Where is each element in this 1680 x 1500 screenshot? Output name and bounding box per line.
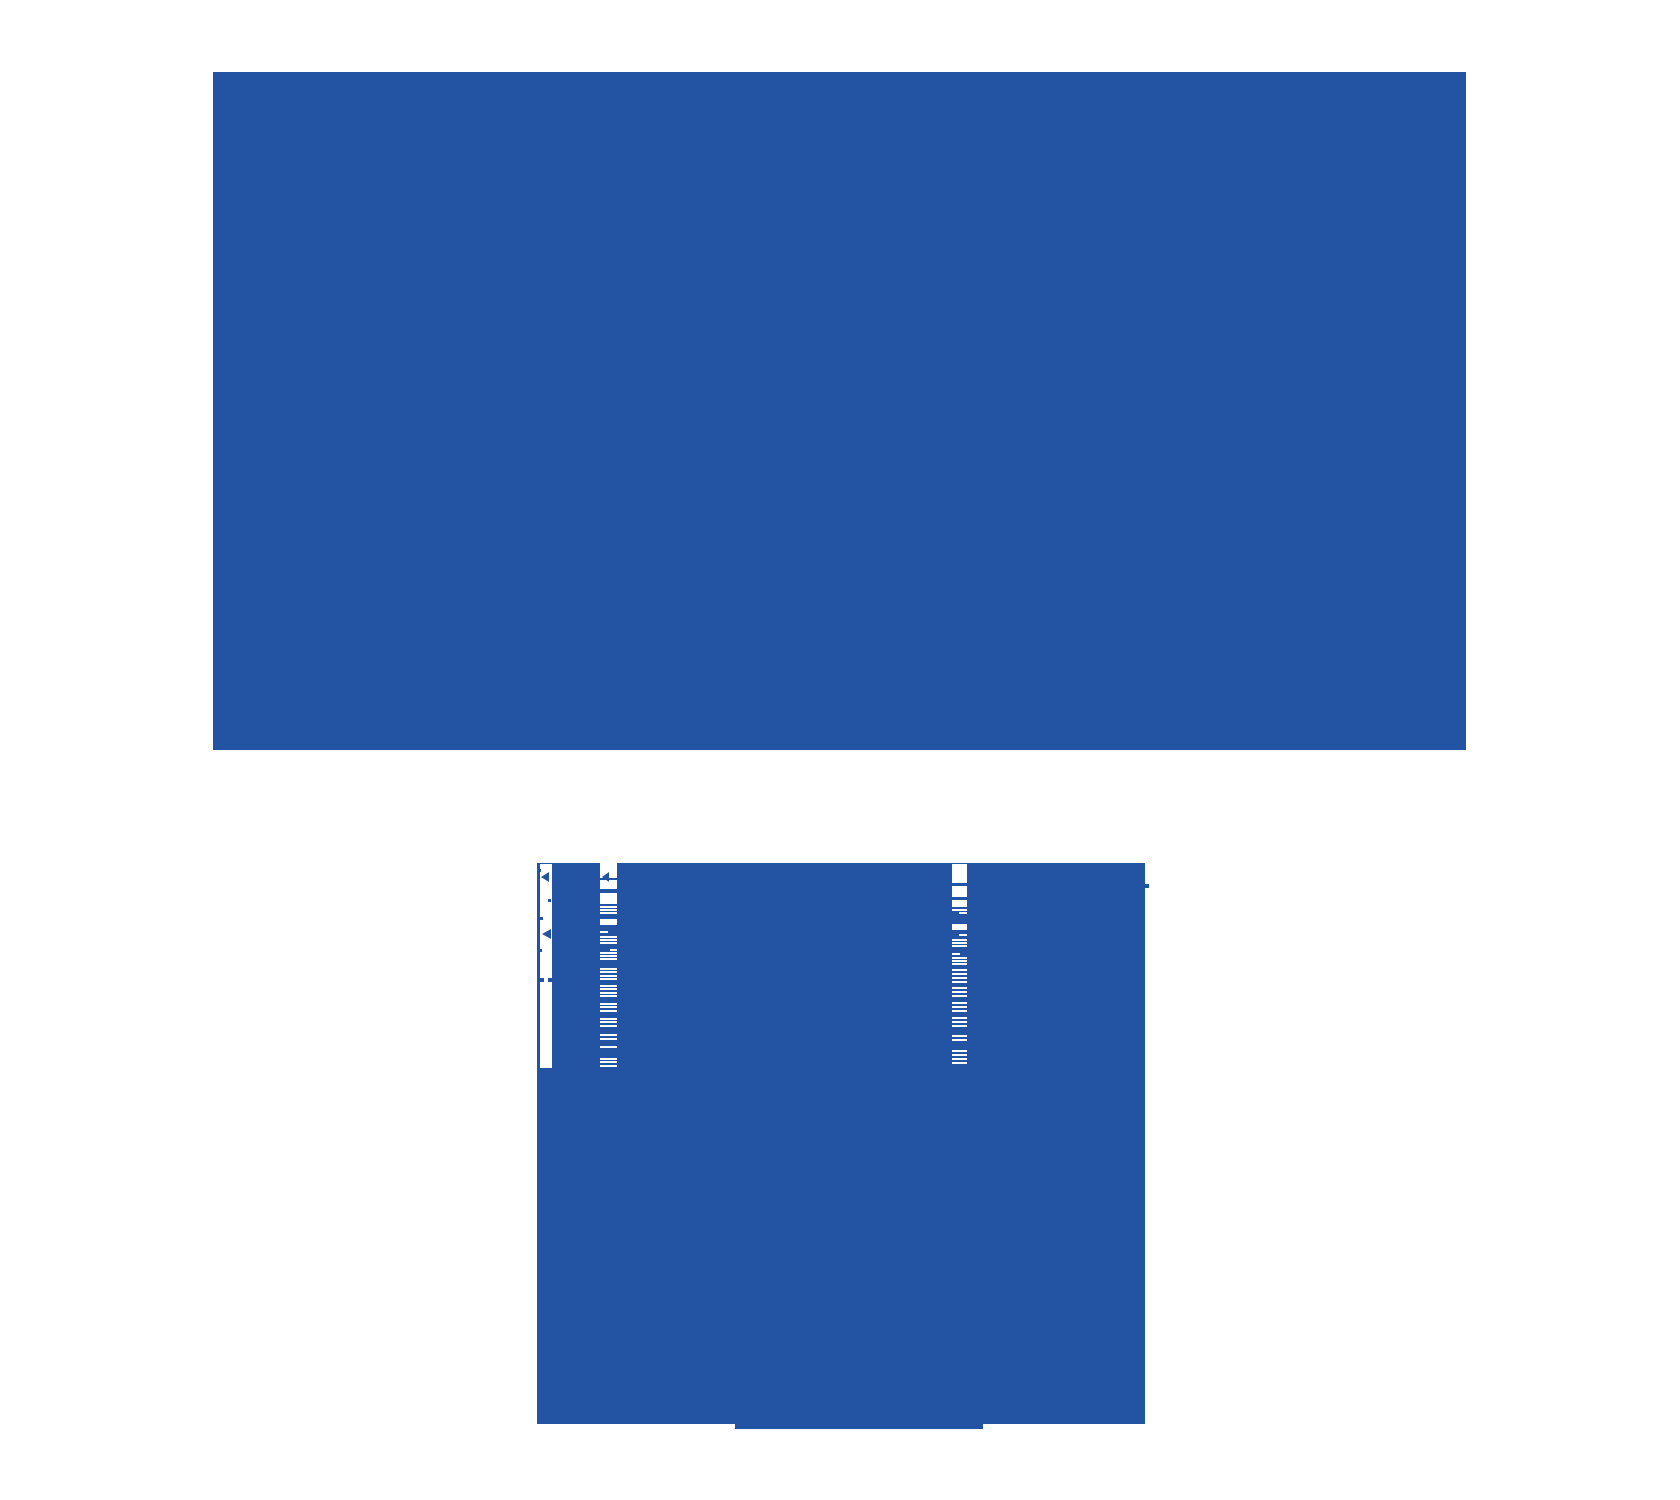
scroll-dot <box>548 899 551 902</box>
thumbnail-text-line <box>610 949 617 951</box>
scrollbar-gutter[interactable] <box>540 864 552 1068</box>
thumbnail-text-line <box>952 1010 967 1012</box>
scroll-dot <box>539 949 542 952</box>
thumbnail-text-line <box>952 1021 967 1023</box>
thumbnail-text-line <box>600 1021 617 1023</box>
scroll-dot <box>548 978 552 982</box>
thumbnail-text-line <box>959 934 967 936</box>
thumbnail-text-line <box>600 936 617 938</box>
thumbnail-text-line <box>600 992 617 994</box>
thumbnail-text-line <box>952 960 967 962</box>
thumbnail-text-line <box>600 975 617 977</box>
thumbnail-text-line <box>600 1018 617 1020</box>
top-window[interactable] <box>213 72 1466 750</box>
thumbnail-text-line <box>952 995 967 997</box>
thumbnail-text-block <box>952 886 967 897</box>
thumbnail-text-line <box>952 1002 967 1004</box>
thumbnail-text-line <box>952 909 967 911</box>
thumbnail-text-line <box>600 1006 617 1008</box>
thumbnail-text-line <box>600 995 617 997</box>
thumbnail-text-line <box>952 939 967 941</box>
thumbnail-text-line <box>600 1010 617 1012</box>
thumbnail-text-line <box>600 1025 617 1027</box>
thumbnail-text-line <box>959 912 967 914</box>
scroll-dot <box>540 978 544 982</box>
thumbnail-text-line <box>952 973 967 975</box>
thumbnail-text-line <box>952 942 967 944</box>
thumbnail-text-line <box>952 1058 967 1060</box>
thumbnail-text-line <box>952 953 960 955</box>
thumbnail-text-line <box>600 988 617 990</box>
thumbnail-text-line <box>600 952 617 954</box>
thumbnail-text-line <box>952 977 967 979</box>
thumbnail-text-line <box>600 942 617 944</box>
thumbnail-text-line <box>600 1058 617 1060</box>
thumbnail-text-line <box>952 1054 967 1056</box>
thumbnail-text-line <box>600 912 617 914</box>
thumbnail-text-line <box>600 909 617 911</box>
cursor-icon <box>541 872 549 882</box>
thumbnail-text-line <box>952 963 967 965</box>
thumbnail-text-line <box>600 931 608 933</box>
window-edge-nub <box>1145 884 1149 888</box>
thumbnail-text-line <box>600 1061 617 1063</box>
thumbnail-text-line <box>952 1039 967 1041</box>
thumbnail-text-line <box>952 1050 967 1052</box>
thumbnail-text-line <box>952 1062 967 1064</box>
thumbnail-text-line <box>952 1025 967 1027</box>
scroll-dot <box>540 917 543 920</box>
thumbnail-text-line <box>600 985 617 987</box>
thumbnail-text-line <box>952 969 967 971</box>
thumbnail-text-line <box>952 981 967 983</box>
thumbnail-text-line <box>952 1006 967 1008</box>
thumbnail-text-line <box>600 971 617 973</box>
thumbnail-text-line <box>600 955 617 957</box>
thumbnail-text-line <box>952 1035 967 1037</box>
thumbnail-text-line <box>600 1046 617 1048</box>
thumbnail-text-line <box>600 958 617 960</box>
desktop <box>0 0 1680 1500</box>
thumbnail-text-line <box>600 968 617 970</box>
thumbnail-text-line <box>600 1038 617 1040</box>
thumbnail-text-line <box>600 1003 617 1005</box>
thumbnail-text-block <box>952 924 967 930</box>
bottom-tab[interactable] <box>735 1424 983 1429</box>
thumbnail-text-line <box>600 939 617 941</box>
thumbnail-text-line <box>600 906 617 908</box>
thumbnail-text-line <box>952 957 967 959</box>
thumbnail-text-line <box>600 1034 617 1036</box>
thumbnail-text-block <box>952 900 967 907</box>
thumbnail-text-line <box>952 991 967 993</box>
thumbnail-text-block <box>600 919 617 925</box>
cursor-icon <box>602 872 609 882</box>
thumbnail-text-line <box>952 1017 967 1019</box>
thumbnail-text-line <box>952 987 967 989</box>
thumbnail-text-block <box>600 893 617 904</box>
bottom-window[interactable] <box>537 863 1145 1424</box>
cursor-icon <box>542 929 551 939</box>
thumbnail-text-block <box>952 864 967 883</box>
thumbnail-text-line <box>600 1065 617 1067</box>
thumbnail-text-line <box>600 978 617 980</box>
thumbnail-text-line <box>952 945 967 947</box>
